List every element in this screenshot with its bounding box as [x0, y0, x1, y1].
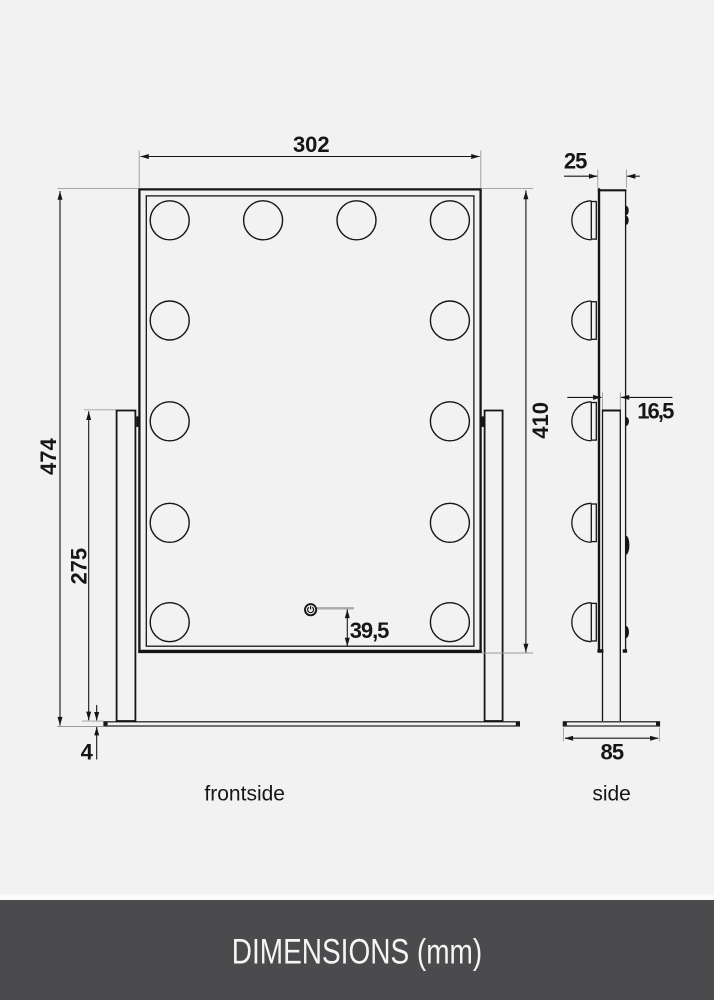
- svg-text:DIMENSIONS (mm): DIMENSIONS (mm): [232, 931, 482, 971]
- svg-text:39,5: 39,5: [350, 618, 389, 643]
- svg-text:474: 474: [36, 437, 61, 474]
- svg-text:85: 85: [600, 739, 623, 764]
- svg-text:frontside: frontside: [204, 783, 285, 806]
- svg-text:25: 25: [564, 149, 587, 174]
- svg-text:4: 4: [81, 739, 94, 764]
- svg-text:275: 275: [67, 548, 92, 585]
- svg-text:302: 302: [293, 132, 330, 157]
- svg-text:16,5: 16,5: [637, 399, 674, 424]
- svg-text:side: side: [592, 783, 631, 806]
- svg-text:410: 410: [528, 402, 553, 439]
